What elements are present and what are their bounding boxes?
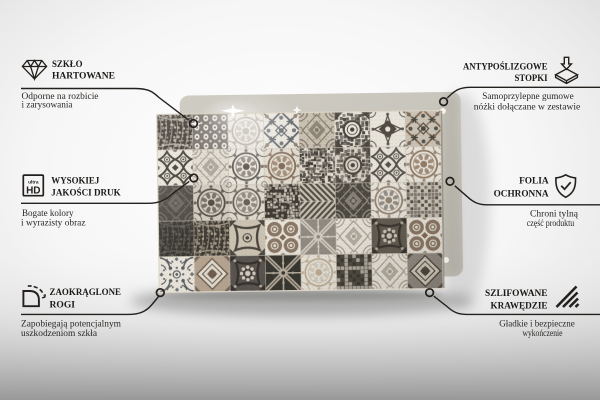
svg-text:i wyrazisty obraz: i wyrazisty obraz	[21, 219, 86, 229]
svg-text:KRAWĘDZIE: KRAWĘDZIE	[491, 301, 548, 311]
svg-text:JAKOŚCI DRUK: JAKOŚCI DRUK	[51, 188, 121, 198]
svg-text:Gładkie i bezpieczne: Gładkie i bezpieczne	[499, 320, 575, 330]
svg-text:i zarysowania: i zarysowania	[22, 100, 74, 110]
svg-text:ROGI: ROGI	[50, 300, 76, 310]
svg-text:STOPKI: STOPKI	[515, 73, 548, 83]
svg-text:Zapobiegają potencjalnym: Zapobiegają potencjalnym	[21, 320, 122, 330]
svg-text:WYSOKIEJ: WYSOKIEJ	[51, 176, 99, 186]
svg-text:SZLIFOWANE: SZLIFOWANE	[485, 288, 548, 298]
svg-text:Chroni tylną: Chroni tylną	[530, 209, 579, 219]
svg-text:ZAOKRĄGLONE: ZAOKRĄGLONE	[50, 287, 122, 297]
svg-text:uszkodzeniom szkła: uszkodzeniom szkła	[21, 329, 98, 339]
svg-text:FOLIA: FOLIA	[519, 176, 549, 186]
svg-text:ANTYPOŚLIZGOWE: ANTYPOŚLIZGOWE	[463, 61, 548, 71]
svg-text:HARTOWANE: HARTOWANE	[52, 70, 115, 80]
svg-text:część produktu: część produktu	[527, 219, 575, 229]
svg-text:wykończenie: wykończenie	[523, 329, 563, 339]
svg-text:Samoprzylepne gumowe: Samoprzylepne gumowe	[482, 92, 574, 102]
svg-text:Bogate kolory: Bogate kolory	[22, 209, 74, 219]
svg-text:nóżki dołączane w zestawie: nóżki dołączane w zestawie	[474, 102, 581, 112]
svg-text:HD: HD	[26, 185, 40, 196]
svg-text:OCHRONNA: OCHRONNA	[494, 189, 549, 199]
svg-text:SZKŁO: SZKŁO	[52, 59, 83, 69]
